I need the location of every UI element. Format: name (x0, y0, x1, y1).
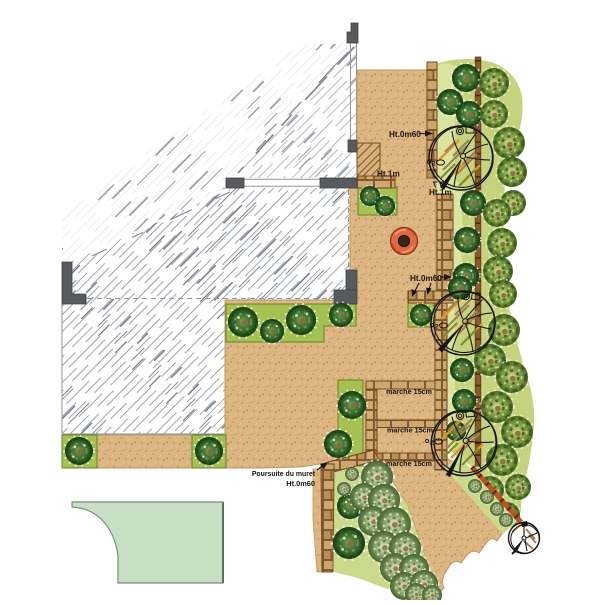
svg-text:2: 2 (432, 161, 436, 168)
svg-text:marche 15cm: marche 15cm (387, 426, 433, 435)
svg-text:Poursuite du muret: Poursuite du muret (252, 471, 316, 478)
svg-text:2: 2 (435, 324, 439, 331)
svg-text:Ht.1m: Ht.1m (377, 170, 400, 179)
svg-text:Ht.0m60: Ht.0m60 (410, 274, 442, 283)
svg-text:marche 15cm: marche 15cm (386, 459, 432, 468)
svg-text:Ht.0m60: Ht.0m60 (389, 130, 421, 139)
svg-text:marche 15cm: marche 15cm (386, 387, 432, 396)
svg-text:Ht.1m: Ht.1m (429, 188, 452, 197)
svg-text:Ht.0m60: Ht.0m60 (286, 479, 315, 488)
svg-text:2: 2 (430, 440, 434, 447)
